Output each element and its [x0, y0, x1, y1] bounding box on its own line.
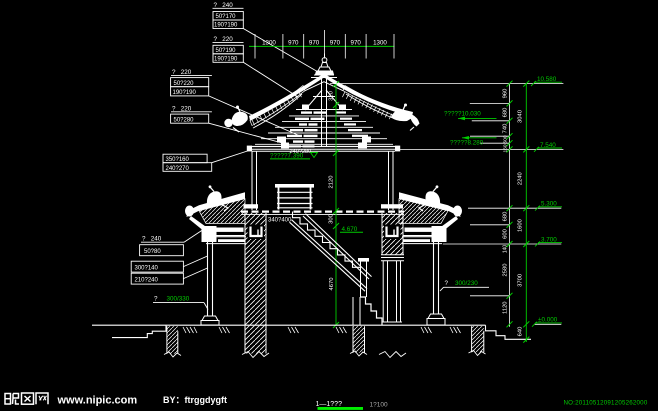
svg-text:4670: 4670 [329, 278, 335, 291]
svg-text:50?170: 50?170 [216, 14, 237, 20]
svg-text:50?80: 50?80 [144, 249, 161, 255]
svg-text:210?240: 210?240 [135, 277, 159, 283]
svg-text:970: 970 [288, 39, 299, 46]
svg-text:BY：ftrggdygft: BY：ftrggdygft [163, 395, 227, 405]
svg-text:300?140: 300?140 [135, 265, 159, 271]
svg-text:?: ? [445, 280, 449, 287]
svg-text:www.nipic.com: www.nipic.com [57, 395, 138, 407]
svg-text:740: 740 [502, 124, 508, 134]
svg-text:970: 970 [330, 39, 341, 46]
svg-text:1—1???: 1—1??? [316, 401, 343, 408]
svg-text:?: ? [154, 295, 158, 302]
svg-text:1300: 1300 [262, 39, 276, 46]
svg-text:970: 970 [309, 39, 320, 46]
svg-text:640: 640 [517, 327, 523, 337]
svg-text:340?400: 340?400 [268, 218, 292, 224]
svg-text:3700: 3700 [517, 274, 523, 287]
svg-text:300/330: 300/330 [167, 295, 190, 302]
svg-text:600: 600 [502, 229, 508, 239]
svg-text:190?190: 190?190 [214, 23, 238, 29]
svg-text:2120: 2120 [329, 176, 335, 189]
svg-text:300/230: 300/230 [455, 280, 478, 287]
svg-text:?????7.390: ?????7.390 [270, 152, 304, 159]
svg-text:? 240: ? 240 [142, 235, 162, 242]
svg-text:500: 500 [502, 135, 508, 143]
svg-text:? 220: ? 220 [214, 36, 234, 43]
svg-text:190?190: 190?190 [214, 57, 238, 63]
svg-text:240?270: 240?270 [166, 166, 190, 172]
svg-text:140: 140 [502, 245, 508, 254]
svg-text:1300: 1300 [373, 39, 387, 46]
svg-text:190?190: 190?190 [173, 90, 197, 96]
svg-text:2580: 2580 [502, 264, 508, 277]
svg-text:50?190: 50?190 [216, 48, 237, 54]
svg-text:3040: 3040 [517, 110, 523, 123]
svg-text:1600: 1600 [517, 219, 523, 232]
svg-text:2240: 2240 [517, 172, 523, 185]
svg-text:1?100: 1?100 [370, 402, 388, 409]
svg-text:50?220: 50?220 [174, 81, 195, 87]
svg-text:680: 680 [502, 108, 508, 118]
svg-text:960: 960 [502, 89, 508, 99]
svg-text:4.670: 4.670 [342, 226, 358, 233]
svg-text:50?280: 50?280 [174, 117, 195, 123]
svg-text:?????10.030: ?????10.030 [444, 111, 481, 118]
svg-text:320: 320 [329, 91, 335, 101]
svg-text:?????8.280: ?????8.280 [450, 140, 484, 147]
svg-text:NO:20110512091205262000: NO:20110512091205262000 [564, 400, 648, 407]
svg-text:160: 160 [502, 144, 508, 152]
svg-text:680: 680 [502, 212, 508, 222]
svg-text:1120: 1120 [502, 301, 508, 313]
svg-text:300: 300 [329, 214, 335, 224]
svg-text:970: 970 [351, 39, 362, 46]
svg-text:350?160: 350?160 [166, 157, 190, 163]
